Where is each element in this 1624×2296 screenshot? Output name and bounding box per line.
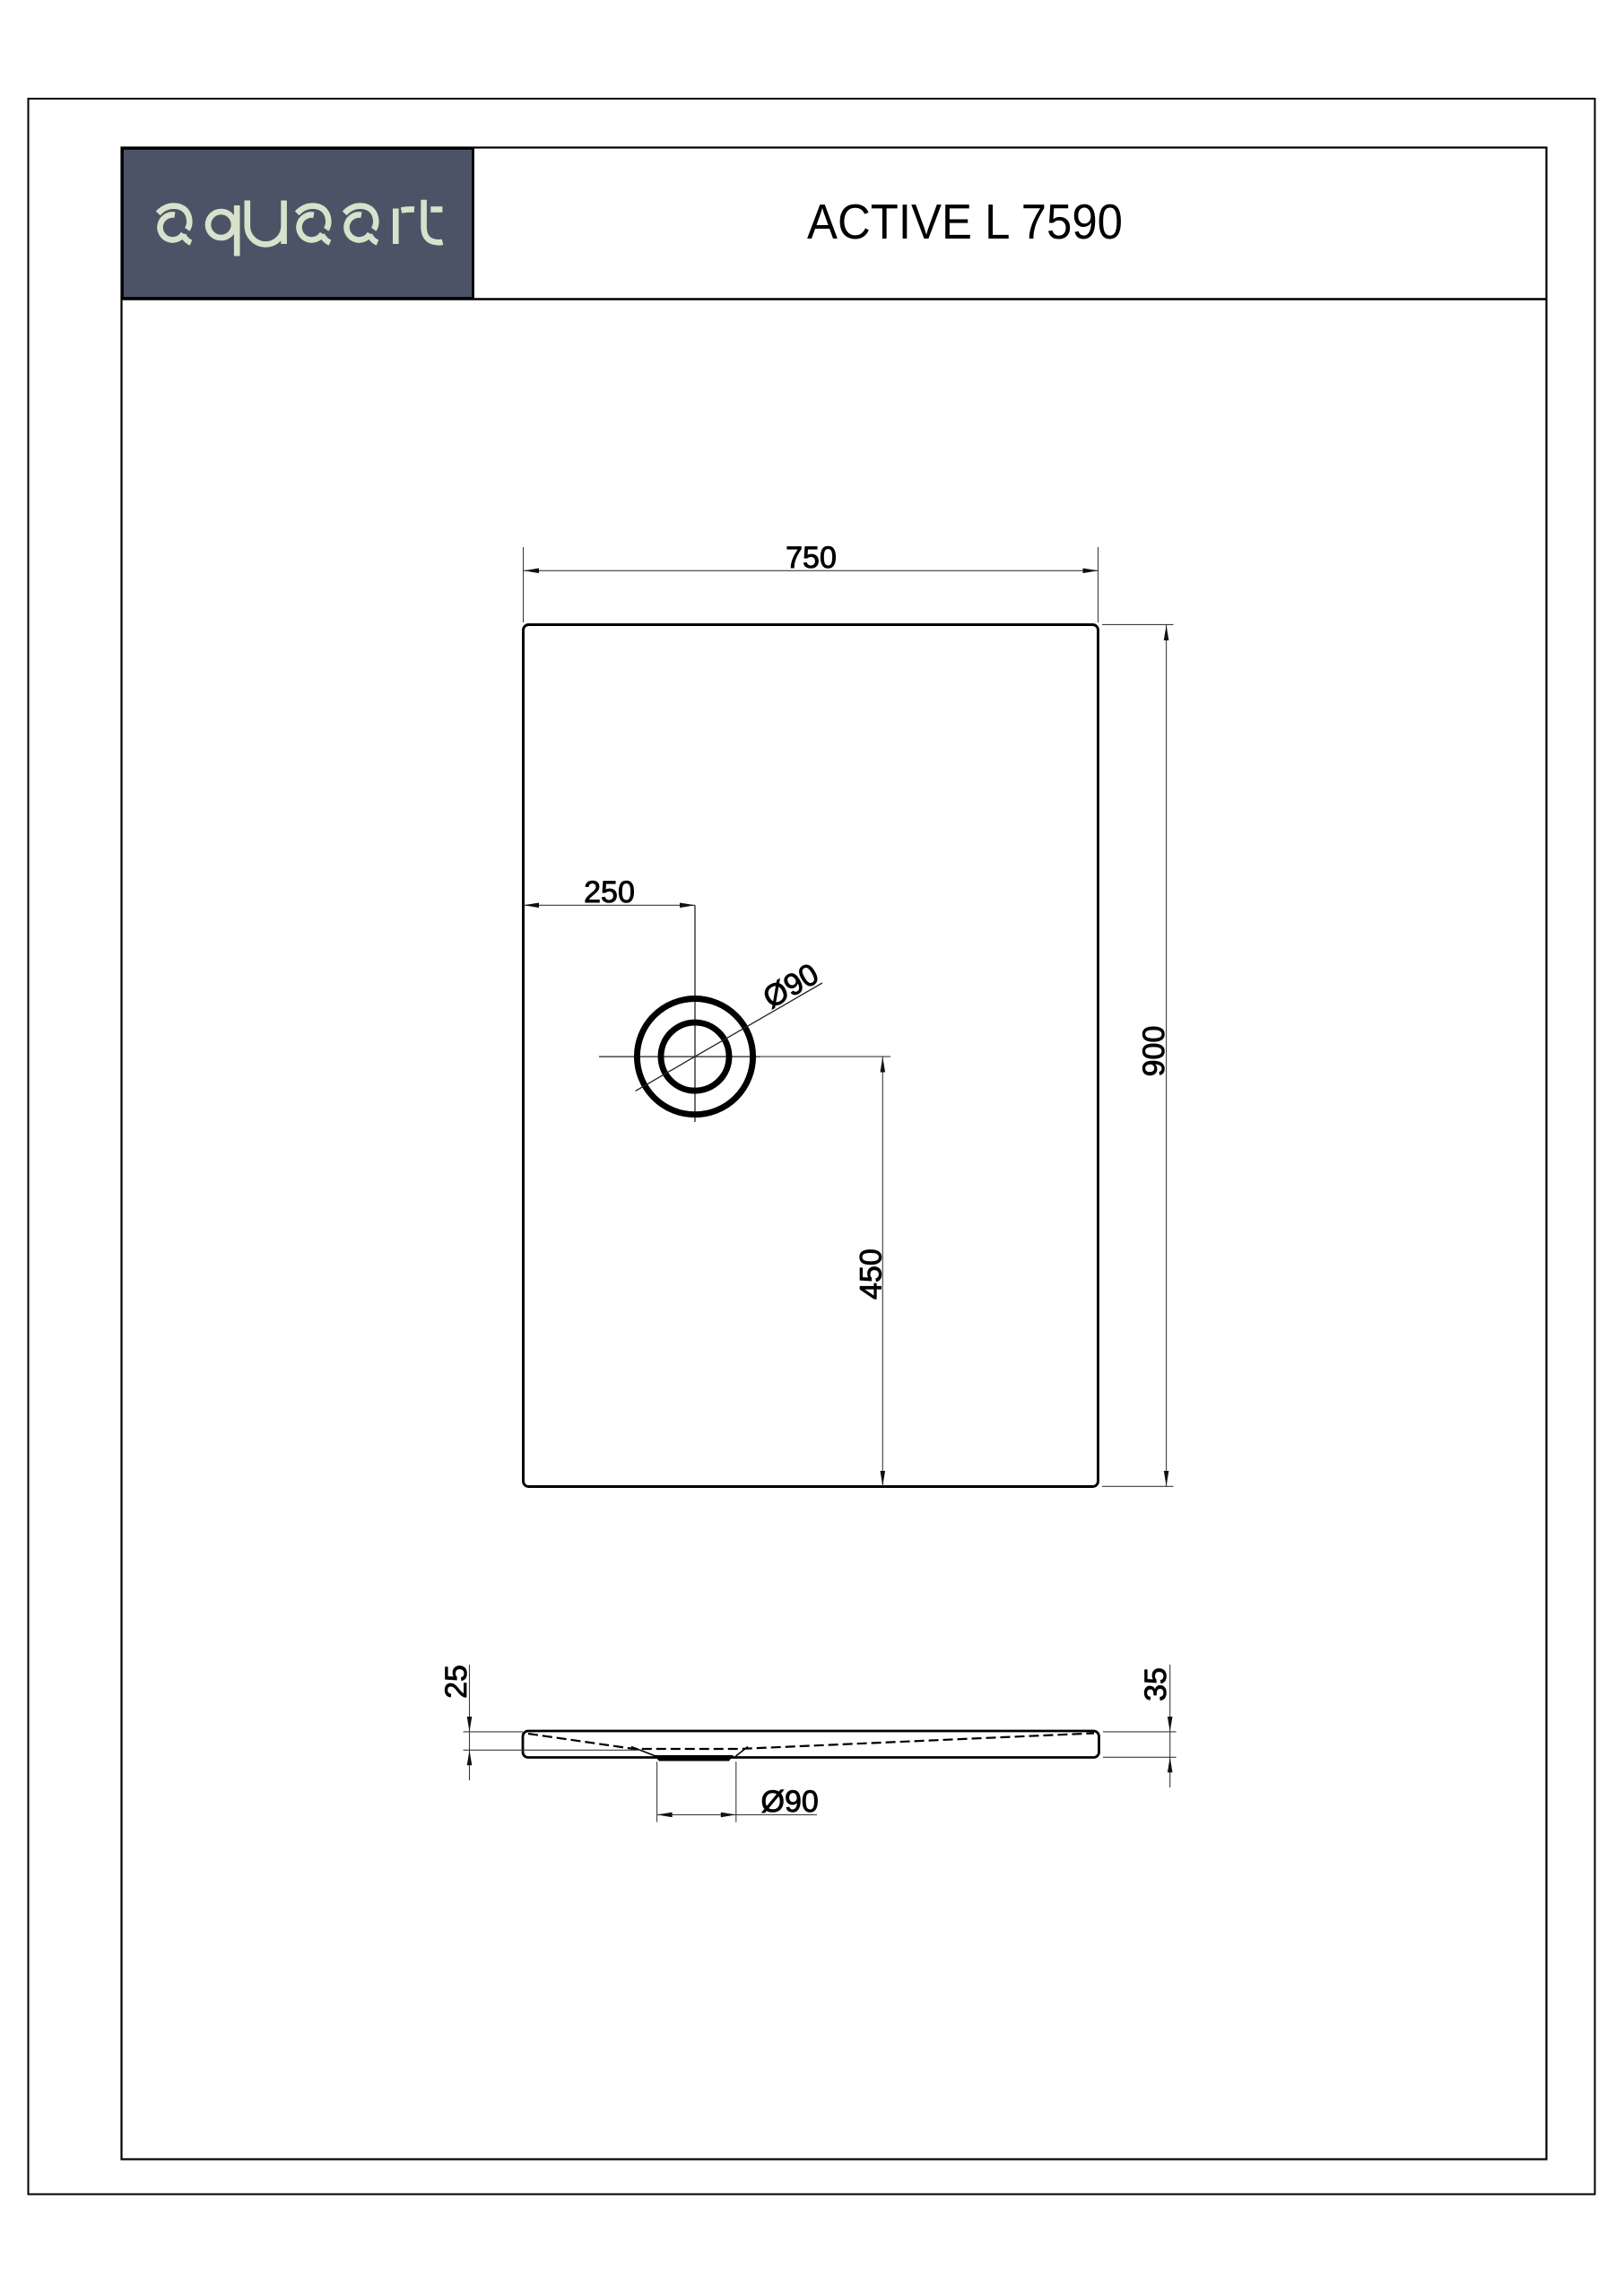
svg-text:900: 900 bbox=[1137, 1026, 1171, 1077]
svg-text:ACTIVE L 7590: ACTIVE L 7590 bbox=[807, 194, 1123, 249]
svg-text:450: 450 bbox=[854, 1248, 888, 1300]
svg-text:750: 750 bbox=[786, 541, 837, 575]
svg-text:35: 35 bbox=[1139, 1667, 1173, 1701]
svg-text:250: 250 bbox=[584, 875, 635, 909]
svg-text:Ø90: Ø90 bbox=[758, 957, 825, 1015]
svg-text:25: 25 bbox=[439, 1665, 473, 1699]
svg-text:Ø90: Ø90 bbox=[761, 1785, 819, 1819]
